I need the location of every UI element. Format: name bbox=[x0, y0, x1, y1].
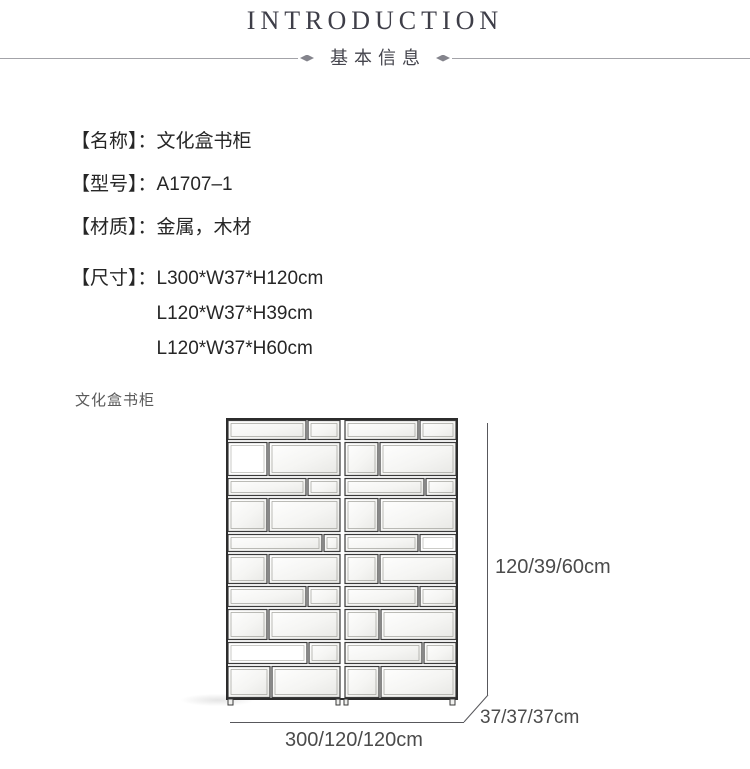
figure-caption: 文化盒书柜 bbox=[75, 389, 155, 410]
diamond-icon-left bbox=[300, 55, 314, 62]
dimension-line-height bbox=[487, 423, 488, 695]
page-title: INTRODUCTION bbox=[0, 6, 750, 36]
spec-label-size: 【尺寸】： bbox=[71, 268, 157, 290]
dimension-label-depth: 37/37/37cm bbox=[480, 707, 579, 729]
spec-row-name: 【名称】： 文化盒书柜 bbox=[71, 131, 252, 153]
spec-row-model: 【型号】： A1707–1 bbox=[71, 174, 233, 196]
subtitle-rule-right bbox=[452, 58, 750, 59]
bookcase-illustration bbox=[226, 418, 458, 708]
spec-value-size-list: L300*W37*H120cm L120*W37*H39cm L120*W37*… bbox=[157, 268, 324, 373]
subtitle-rule-left bbox=[0, 58, 298, 59]
dimension-label-width: 300/120/120cm bbox=[234, 729, 474, 751]
spec-label-material: 【材质】： bbox=[71, 217, 157, 239]
diamond-icon-right bbox=[436, 55, 450, 62]
spec-row-material: 【材质】： 金属，木材 bbox=[71, 217, 252, 239]
spec-value-name: 文化盒书柜 bbox=[157, 131, 252, 153]
spec-value-size-3: L120*W37*H60cm bbox=[157, 338, 324, 360]
product-intro-page: INTRODUCTION 基本信息 【名称】： 文化盒书柜 【型号】： A170… bbox=[0, 0, 750, 769]
section-subtitle: 基本信息 bbox=[316, 48, 434, 68]
dimension-label-height: 120/39/60cm bbox=[495, 556, 611, 578]
spec-row-size: 【尺寸】： L300*W37*H120cm L120*W37*H39cm L12… bbox=[71, 268, 323, 373]
spec-label-model: 【型号】： bbox=[71, 174, 157, 196]
dimension-line-width bbox=[230, 722, 464, 723]
spec-value-size-1: L300*W37*H120cm bbox=[157, 268, 324, 290]
spec-value-model: A1707–1 bbox=[157, 174, 233, 196]
spec-label-name: 【名称】： bbox=[71, 131, 157, 153]
section-header: 基本信息 bbox=[0, 48, 750, 68]
spec-value-material: 金属，木材 bbox=[157, 217, 252, 239]
spec-value-size-2: L120*W37*H39cm bbox=[157, 303, 324, 325]
